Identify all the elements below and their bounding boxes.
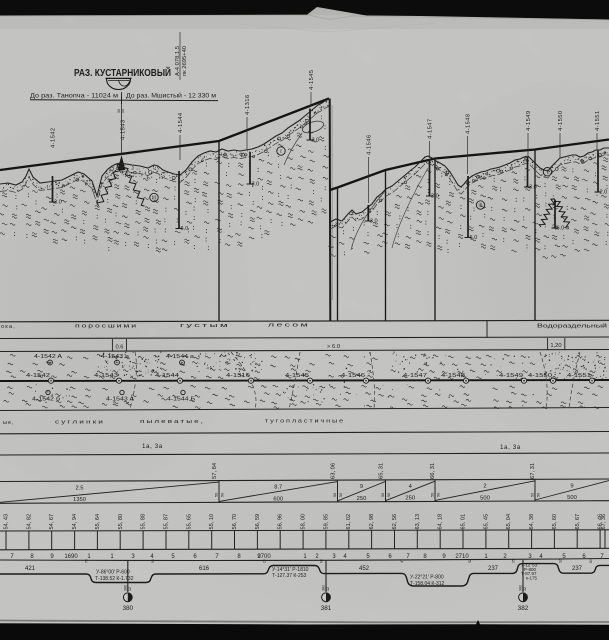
- svg-text:1а, 3а: 1а, 3а: [500, 444, 521, 451]
- svg-text:55, 65: 55, 65: [186, 514, 192, 530]
- svg-text:4-1550: 4-1550: [558, 111, 564, 131]
- svg-text:600: 600: [273, 496, 283, 502]
- svg-text:50: 50: [531, 493, 535, 497]
- svg-text:4-1543: 4-1543: [94, 373, 118, 379]
- svg-text:382: 382: [519, 585, 523, 591]
- svg-text:суглинки: суглинки: [55, 420, 105, 426]
- svg-text:56, 70: 56, 70: [232, 514, 238, 530]
- svg-text:54, 67: 54, 67: [49, 514, 55, 530]
- svg-text:56, 96: 56, 96: [278, 514, 284, 530]
- svg-text:3.0: 3.0: [370, 219, 378, 225]
- svg-text:50: 50: [333, 493, 337, 497]
- svg-text:65, 04: 65, 04: [506, 514, 512, 530]
- svg-text:I: I: [547, 170, 548, 176]
- svg-text:4-1316: 4-1316: [245, 95, 251, 115]
- svg-text:густым: густым: [180, 323, 230, 329]
- svg-text:4-1546: 4-1546: [341, 373, 365, 379]
- svg-text:1а, 3а: 1а, 3а: [142, 443, 163, 450]
- svg-text:А-4 078,1,5: А-4 078,1,5: [175, 46, 181, 76]
- svg-text:У-14°31′ Р-1810: У-14°31′ Р-1810: [272, 567, 309, 573]
- svg-text:До раз. Танопча - 11024 м: До раз. Танопча - 11024 м: [30, 94, 118, 100]
- svg-text:лесом: лесом: [268, 323, 310, 329]
- svg-text:4-1542 A: 4-1542 A: [34, 354, 63, 360]
- svg-text:I: I: [280, 149, 281, 155]
- svg-text:Т-127.37 К-253: Т-127.37 К-253: [272, 573, 307, 579]
- svg-text:616: 616: [199, 566, 210, 572]
- svg-text:3.0: 3.0: [252, 182, 260, 188]
- svg-text:65, 01: 65, 01: [461, 514, 467, 530]
- svg-text:III: III: [152, 195, 156, 201]
- svg-text:Водораздельный: Водораздельный: [537, 323, 607, 330]
- svg-text:пк 2695+40: пк 2695+40: [182, 46, 188, 76]
- svg-text:8.7: 8.7: [274, 485, 282, 491]
- svg-text:452: 452: [359, 566, 370, 572]
- svg-text:237: 237: [488, 566, 499, 572]
- svg-text:55, 10: 55, 10: [209, 514, 215, 530]
- svg-text:9: 9: [570, 483, 573, 489]
- svg-text:У-22°21′ Р-800: У-22°21′ Р-800: [410, 575, 444, 581]
- svg-text:4-1550: 4-1550: [528, 373, 552, 379]
- svg-text:поросшими: поросшими: [75, 324, 138, 330]
- svg-text:4-1545: 4-1545: [285, 373, 309, 379]
- svg-text:3.0: 3.0: [529, 185, 537, 191]
- svg-text:2.5: 2.5: [75, 485, 83, 491]
- svg-text:3.0: 3.0: [431, 194, 439, 200]
- svg-text:12: 12: [523, 587, 527, 591]
- svg-text:4-1551: 4-1551: [567, 373, 591, 379]
- svg-text:3.0: 3.0: [312, 138, 320, 144]
- svg-text:4-1549: 4-1549: [499, 373, 523, 379]
- svg-text:61, 02: 61, 02: [346, 514, 352, 530]
- svg-text:67, 31: 67, 31: [530, 463, 536, 479]
- svg-text:4-1547: 4-1547: [428, 119, 434, 139]
- svg-text:64, 18: 64, 18: [438, 514, 444, 530]
- svg-text:12: 12: [326, 587, 330, 591]
- svg-text:тугопластичные: тугопластичные: [265, 419, 345, 425]
- svg-text:1350: 1350: [73, 497, 86, 503]
- svg-text:66, 31: 66, 31: [430, 463, 436, 479]
- svg-text:4-1542 б: 4-1542 б: [32, 397, 60, 403]
- svg-text:55, 87: 55, 87: [164, 514, 170, 530]
- svg-text:50: 50: [537, 493, 541, 497]
- svg-text:ые,: ые,: [3, 420, 15, 426]
- svg-text:До раз. Мшистый - 12 330 м: До раз. Мшистый - 12 330 м: [126, 93, 216, 100]
- svg-text:4-1546: 4-1546: [367, 135, 373, 155]
- svg-text:Т-158.04 К-312: Т-158.04 К-312: [410, 581, 445, 587]
- svg-text:68: 68: [320, 559, 324, 563]
- svg-text:4-1545: 4-1545: [309, 70, 315, 90]
- svg-text:53: 53: [151, 559, 155, 563]
- svg-text:78: 78: [85, 559, 89, 563]
- svg-text:III: III: [478, 203, 482, 209]
- svg-text:380: 380: [122, 605, 133, 612]
- svg-text:2: 2: [483, 484, 486, 490]
- svg-text:35: 35: [512, 559, 516, 563]
- svg-text:ока,: ока,: [1, 324, 16, 330]
- svg-text:50: 50: [387, 493, 391, 497]
- svg-text:4-1548: 4-1548: [441, 373, 465, 379]
- svg-text:4-1544: 4-1544: [178, 112, 184, 133]
- svg-text:4-1542: 4-1542: [51, 128, 57, 148]
- svg-text:9: 9: [360, 484, 363, 490]
- svg-text:20: 20: [263, 559, 267, 563]
- svg-text:62, 56: 62, 56: [392, 514, 398, 530]
- svg-text:381: 381: [322, 585, 326, 591]
- svg-text:250: 250: [357, 496, 367, 502]
- svg-text:50: 50: [221, 493, 225, 497]
- svg-text:> 6.0: > 6.0: [327, 344, 340, 350]
- svg-text:4-1547: 4-1547: [403, 373, 427, 379]
- svg-text:50: 50: [437, 493, 441, 497]
- svg-text:50: 50: [339, 493, 343, 497]
- svg-text:382: 382: [518, 605, 529, 612]
- svg-text:4-1548: 4-1548: [466, 114, 472, 134]
- svg-text:4-1316: 4-1316: [226, 373, 250, 379]
- svg-text:67, 36: 67, 36: [601, 514, 607, 530]
- svg-text:4-1543 a: 4-1543 a: [101, 354, 129, 360]
- svg-text:32: 32: [559, 559, 563, 563]
- svg-text:50: 50: [431, 493, 435, 497]
- svg-text:к-175: к-175: [526, 575, 537, 580]
- svg-text:237: 237: [572, 566, 583, 572]
- svg-text:381: 381: [321, 605, 332, 612]
- svg-text:80: 80: [589, 559, 593, 563]
- svg-text:2700: 2700: [257, 554, 271, 560]
- svg-text:59, 85: 59, 85: [323, 514, 329, 530]
- svg-text:50: 50: [215, 493, 219, 497]
- svg-text:63, 06: 63, 06: [331, 463, 337, 479]
- svg-text:РАЗ. КУСТАРНИКОВЫЙ: РАЗ. КУСТАРНИКОВЫЙ: [74, 66, 171, 79]
- svg-text:64, 38: 64, 38: [529, 514, 535, 530]
- svg-text:421: 421: [25, 566, 36, 572]
- svg-text:пылеватые,: пылеватые,: [140, 419, 205, 425]
- svg-text:55, 80: 55, 80: [118, 514, 124, 530]
- svg-text:6.0: 6.0: [181, 226, 189, 232]
- svg-text:50: 50: [381, 493, 385, 497]
- svg-text:0.6: 0.6: [115, 345, 123, 351]
- svg-text:65, 31: 65, 31: [379, 463, 385, 479]
- svg-text:55, 88: 55, 88: [141, 514, 147, 530]
- svg-text:54, 43: 54, 43: [4, 514, 10, 530]
- svg-text:4-1543 A: 4-1543 A: [106, 397, 135, 403]
- svg-text:1,20: 1,20: [550, 343, 561, 349]
- svg-text:65, 60: 65, 60: [552, 514, 558, 530]
- svg-text:6.0: 6.0: [557, 226, 565, 232]
- svg-text:4-1544: 4-1544: [155, 373, 179, 379]
- svg-text:55, 64: 55, 64: [95, 514, 101, 530]
- svg-text:58, 00: 58, 00: [301, 514, 307, 530]
- svg-text:54, 82: 54, 82: [26, 514, 32, 530]
- svg-text:4-1549: 4-1549: [526, 111, 532, 131]
- svg-text:4-1542: 4-1542: [26, 373, 50, 379]
- svg-text:4-1551: 4-1551: [595, 111, 601, 131]
- svg-text:6.0: 6.0: [470, 235, 478, 241]
- svg-text:500: 500: [567, 495, 577, 501]
- svg-text:63, 13: 63, 13: [415, 514, 421, 530]
- svg-text:56, 59: 56, 59: [255, 514, 261, 530]
- svg-text:54, 94: 54, 94: [72, 514, 78, 530]
- svg-text:50: 50: [121, 109, 125, 113]
- svg-text:65, 67: 65, 67: [575, 514, 581, 530]
- svg-text:У-86°00′ Р-600: У-86°00′ Р-600: [96, 570, 130, 576]
- svg-text:57, 84: 57, 84: [212, 462, 218, 479]
- svg-text:4-1544 a: 4-1544 a: [166, 354, 194, 360]
- svg-text:4-1544 Б: 4-1544 Б: [167, 397, 196, 403]
- svg-text:250: 250: [405, 496, 415, 502]
- svg-text:65, 45: 65, 45: [483, 514, 489, 530]
- svg-text:47: 47: [400, 559, 404, 563]
- svg-text:3.0: 3.0: [54, 200, 62, 206]
- svg-text:2.0: 2.0: [600, 190, 608, 196]
- svg-text:380: 380: [123, 585, 127, 591]
- svg-text:500: 500: [480, 495, 490, 501]
- svg-text:12: 12: [128, 587, 132, 591]
- svg-text:62, 98: 62, 98: [369, 514, 375, 530]
- svg-text:1690: 1690: [64, 554, 78, 560]
- svg-text:92: 92: [468, 559, 472, 563]
